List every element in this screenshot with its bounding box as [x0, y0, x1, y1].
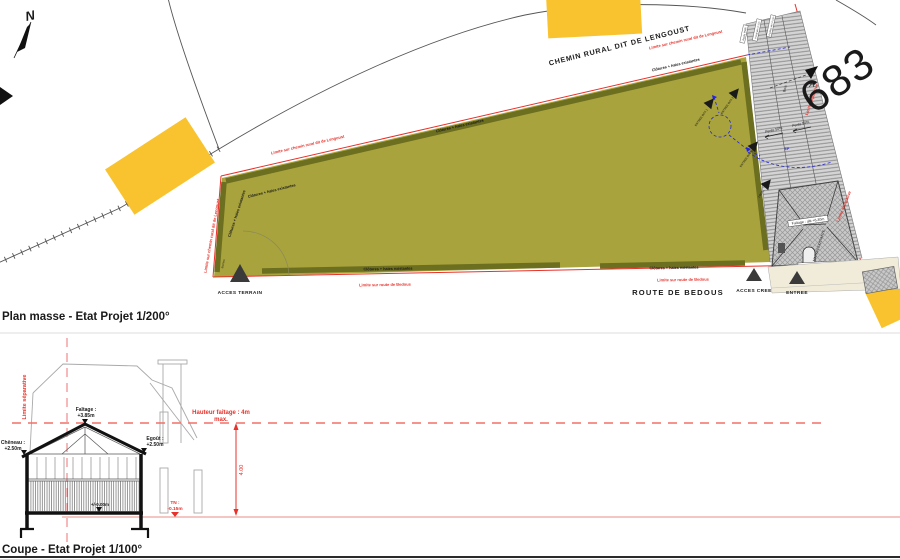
acces-terrain-label: ACCES TERRAIN [218, 290, 263, 296]
wall-hatch-band [29, 481, 140, 511]
tn-triangle [171, 512, 179, 517]
existing-roof-inner [150, 383, 194, 440]
egout-value: +2.50m [146, 442, 164, 448]
yellow-building-west [105, 117, 215, 215]
faitage-value: +3.85m [77, 413, 95, 419]
yellow-building-north [546, 0, 642, 38]
acces-cree-label: ACCES CREE [736, 288, 772, 294]
wall-studs-band [29, 457, 140, 479]
coupe-title: Coupe - Etat Projet 1/100° [2, 544, 142, 556]
ep-label: EP [784, 147, 790, 151]
existing-duct-3 [194, 470, 202, 513]
section-letter: A [808, 80, 814, 89]
architectural-drawing-sheet: Accès PMR Portail alti +2.10m Portillon … [0, 0, 900, 559]
chimney-cap [158, 360, 187, 364]
existing-roof-outline [33, 364, 197, 438]
plan-title: Plan masse - Etat Projet 1/200° [2, 311, 170, 323]
dimension-value: 4.00 [239, 465, 245, 476]
north-arrow: N [0, 7, 37, 105]
road-continuation [836, 0, 876, 25]
dimension-arrow-top [234, 423, 239, 430]
max-height-label-1: Hauteur faîtage : 4m [192, 410, 250, 416]
north-needle-line [14, 22, 31, 58]
tn-marker: TN : -0.15m [167, 500, 182, 517]
cheneau-value: +2.50m [4, 446, 22, 452]
acces-cree-triangle [746, 268, 762, 281]
north-letter: N [24, 7, 37, 24]
entree-label: ENTREE [786, 290, 808, 296]
edge-arrow-icon [0, 87, 13, 105]
coupe-section: Limite séparative Hauteur faîtage : 4m m… [1, 338, 900, 545]
existing-house-annex [778, 243, 785, 253]
tn-value: -0.15m [167, 506, 182, 512]
dimension-4m: 4.00 [234, 423, 246, 516]
coupe-new-building [20, 419, 149, 538]
footing-right [131, 529, 149, 538]
clotures-label-bottomright: Clôtures + haies existantes [649, 266, 698, 271]
tn-label: TN : [170, 500, 180, 506]
site-plan: Accès PMR Portail alti +2.10m Portillon … [0, 0, 900, 328]
drawing-canvas: Accès PMR Portail alti +2.10m Portillon … [0, 0, 900, 559]
route-bedous-label: ROUTE DE BEDOUS [632, 288, 724, 297]
roof-bold [22, 424, 146, 457]
max-height-label-2: max. [214, 417, 228, 423]
coupe-limite-label: Limite séparative [22, 375, 28, 420]
clotures-label-bottomleft: Clôtures + haies existantes [363, 267, 412, 272]
footing-left [20, 529, 34, 538]
niveau-zero-label: +/-0.00m [91, 502, 109, 507]
limite-route-label-right: Limite sur route de Bedous [657, 277, 710, 283]
limite-route-label-left: Limite sur route de Bedous [359, 282, 412, 288]
dimension-arrow-bottom [234, 509, 239, 516]
